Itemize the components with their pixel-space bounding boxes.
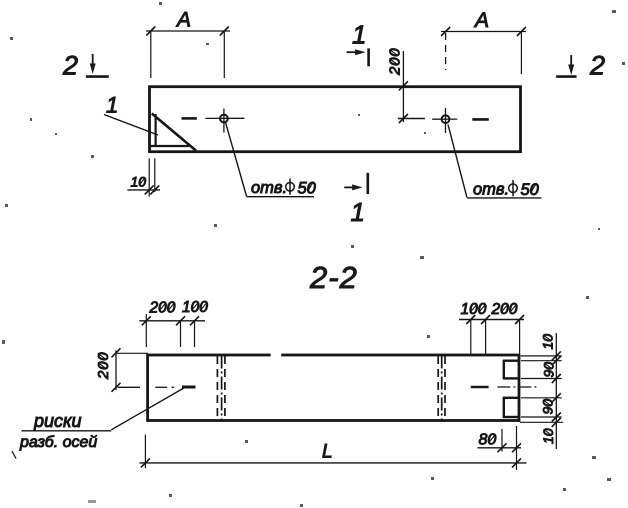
svg-text:1: 1 <box>351 197 365 227</box>
svg-text:90: 90 <box>540 399 556 415</box>
svg-text:10: 10 <box>540 428 556 444</box>
svg-text:1: 1 <box>352 20 366 50</box>
svg-text:отв.: отв. <box>473 181 509 199</box>
svg-text:90: 90 <box>541 362 557 378</box>
svg-text:100: 100 <box>461 301 487 318</box>
svg-text:L: L <box>322 442 333 463</box>
svg-text:A: A <box>473 9 489 32</box>
svg-text:200: 200 <box>387 48 404 76</box>
svg-text:200: 200 <box>95 352 112 380</box>
svg-text:50: 50 <box>521 181 540 199</box>
svg-text:10: 10 <box>540 334 556 350</box>
svg-text:разб. осей: разб. осей <box>19 434 97 451</box>
svg-text:10: 10 <box>131 174 147 190</box>
svg-text:A: A <box>175 9 191 32</box>
svg-text:отв.: отв. <box>251 179 287 197</box>
svg-text:1: 1 <box>106 93 118 118</box>
svg-text:риски: риски <box>33 411 82 431</box>
svg-text:2: 2 <box>589 51 605 81</box>
svg-text:2-2: 2-2 <box>309 260 358 295</box>
svg-text:80: 80 <box>479 432 497 449</box>
svg-text:100: 100 <box>182 299 208 316</box>
svg-text:50: 50 <box>298 180 317 198</box>
svg-text:2: 2 <box>62 51 78 81</box>
